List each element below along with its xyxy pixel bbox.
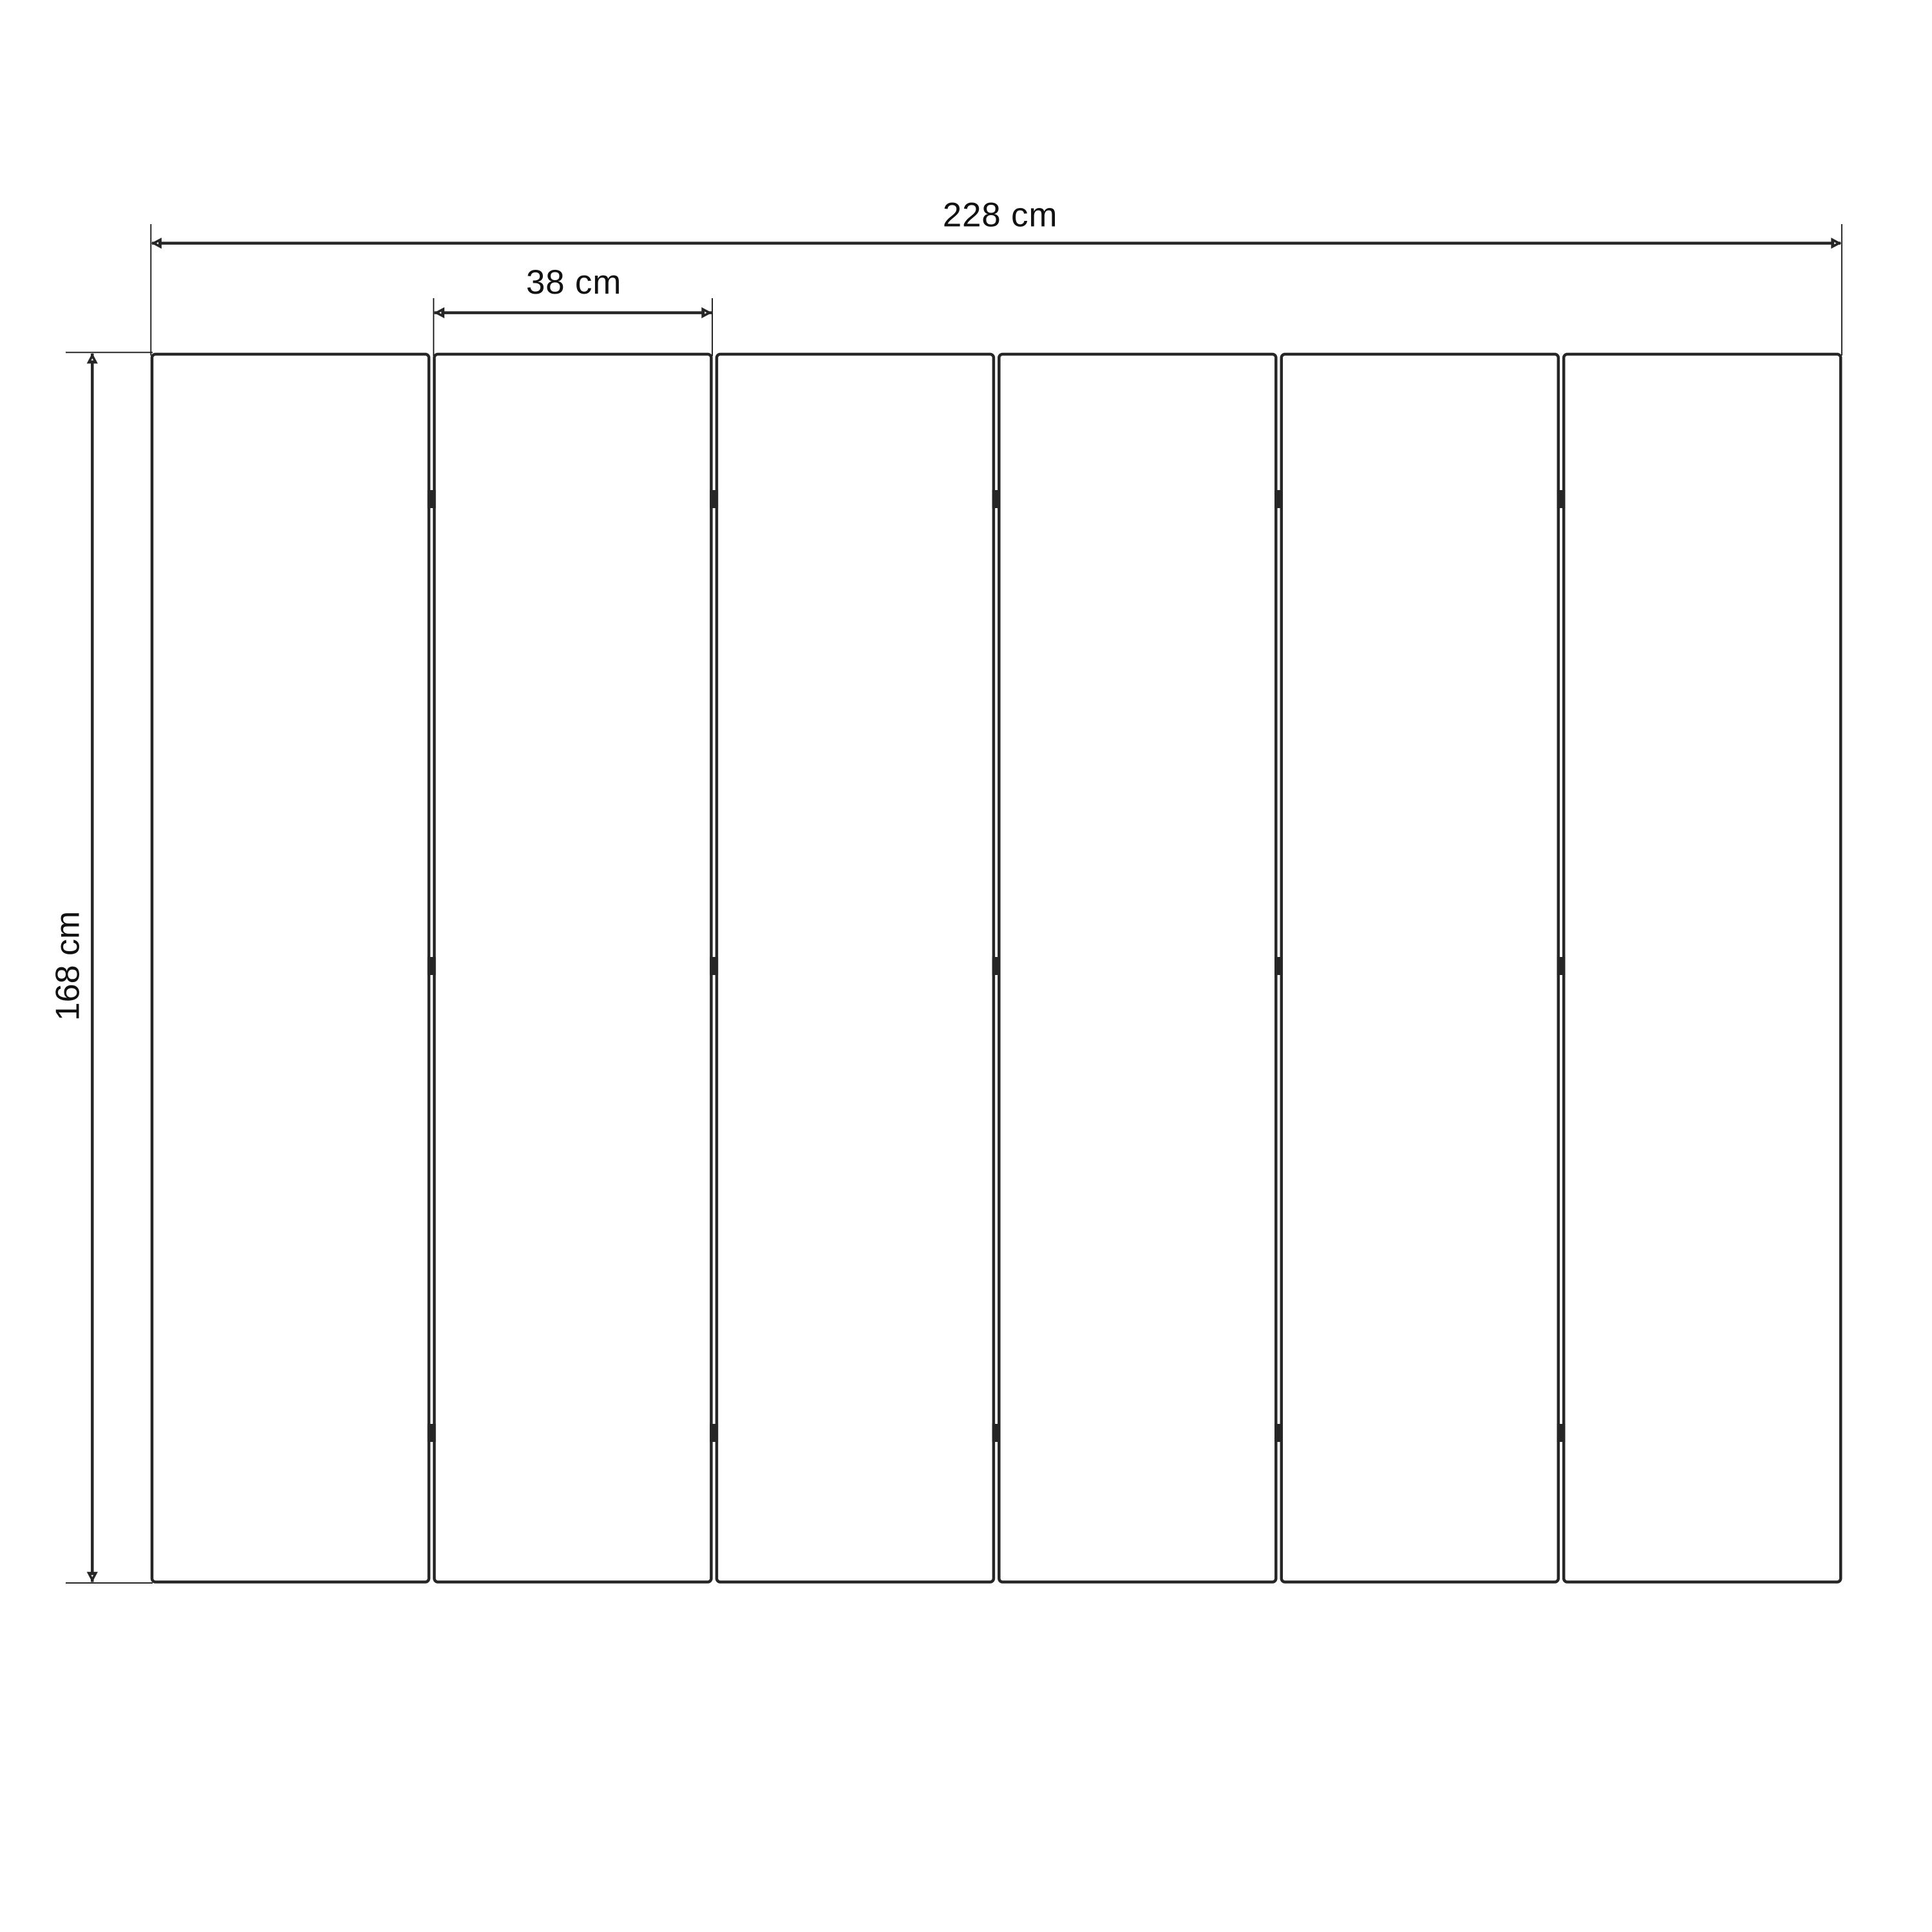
- svg-text:38 cm: 38 cm: [526, 263, 621, 301]
- svg-text:168 cm: 168 cm: [50, 911, 87, 1021]
- svg-text:228 cm: 228 cm: [943, 196, 1058, 234]
